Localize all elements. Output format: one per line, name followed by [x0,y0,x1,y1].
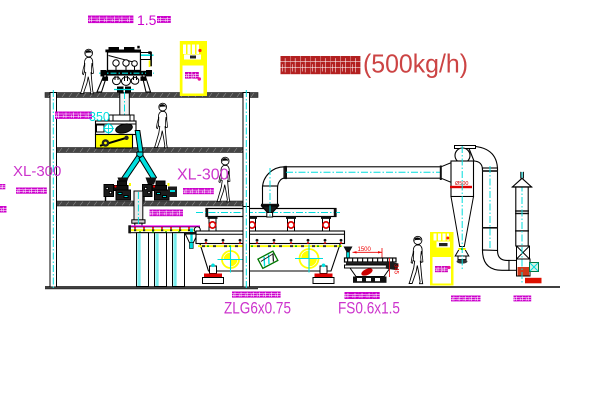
svg-text:1.5: 1.5 [137,12,157,28]
svg-text:XL-300: XL-300 [13,163,61,180]
svg-text:1500: 1500 [358,247,372,253]
svg-text:ZLG6x0.75: ZLG6x0.75 [224,299,291,318]
svg-text:FS0.6x1.5: FS0.6x1.5 [338,299,400,318]
svg-text:(500kg/h): (500kg/h) [363,49,468,79]
svg-text:345: 345 [393,264,399,275]
svg-text:XL-300: XL-300 [177,167,229,184]
svg-text:350: 350 [89,110,110,124]
